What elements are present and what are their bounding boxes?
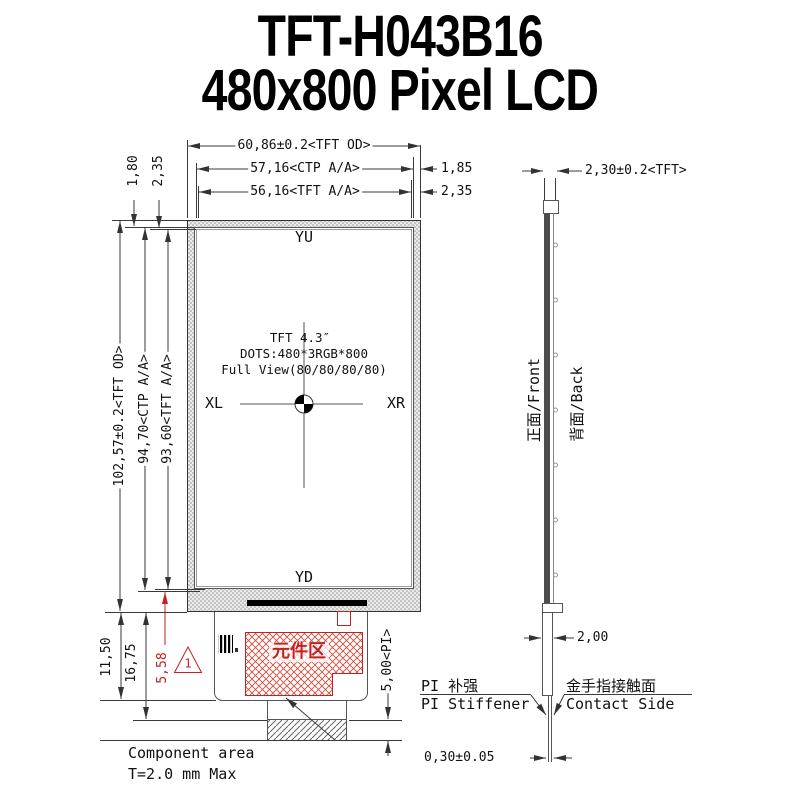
dim-pi: 5,00<PI> [381, 627, 395, 694]
component-note-line1: Component area [128, 745, 254, 762]
dim-gap-right-ctp: 1,85 [441, 162, 472, 176]
dim-bottom-1: 11,50 [100, 635, 114, 678]
side-profile-view [420, 171, 692, 762]
dim-thickness: 2,30±0.2<TFT> [585, 164, 687, 178]
panel-spec-size: TFT 4.3″ [270, 331, 330, 345]
side-label-front: 正面/Front [526, 358, 543, 442]
dim-bottom-red: 5,58 [156, 652, 170, 683]
contact-label-cn: 金手指接触面 [566, 678, 656, 695]
dim-fpc-thickness: 0,30±0.05 [424, 751, 494, 765]
stiffener-label-en: PI Stiffener [421, 696, 529, 713]
contact-label-en: Contact Side [566, 696, 674, 713]
panel-spec-view: Full View(80/80/80/80) [221, 363, 387, 377]
stiffener-label-cn: PI 补强 [421, 678, 478, 695]
red-square-mark [338, 612, 351, 626]
panel-front-view [188, 221, 421, 612]
dim-bottom-2: 16,75 [125, 641, 139, 684]
barcode-icon [218, 635, 238, 653]
dim-height-od: 102,57±0.2<TFT OD> [113, 344, 127, 489]
dim-width-tft: 56,16<TFT A/A> [248, 185, 362, 199]
dim-gap-top-tft: 2,35 [152, 153, 166, 188]
panel-spec-dots: DOTS:480*3RGB*800 [240, 347, 368, 361]
dim-tail-width: 2,00 [577, 631, 608, 645]
dim-height-tft: 93,60<TFT A/A> [161, 352, 175, 466]
dim-width-ctp: 57,16<CTP A/A> [248, 162, 362, 176]
datasheet-drawing: TFT-H043B16 480x800 Pixel LCD [0, 0, 800, 800]
triangle-number: 1 [184, 657, 191, 670]
component-area-cn-label: 元件区 [269, 642, 329, 662]
panel-connector-bar [247, 600, 367, 606]
panel-label-yd: YD [295, 569, 313, 586]
dim-gap-right-tft: 2,35 [441, 185, 472, 199]
panel-label-xr: XR [387, 395, 405, 412]
component-note-line2: T=2.0 mm Max [128, 766, 236, 783]
dim-width-od: 60,86±0.2<TFT OD> [235, 139, 372, 153]
dim-height-ctp: 94,70<CTP A/A> [138, 352, 152, 466]
dim-gap-top-ctp: 1,80 [127, 153, 141, 188]
side-label-back: 背面/Back [569, 366, 586, 441]
panel-label-xl: XL [205, 395, 223, 412]
adhesive-dots [554, 243, 558, 577]
panel-label-yu: YU [295, 229, 313, 246]
